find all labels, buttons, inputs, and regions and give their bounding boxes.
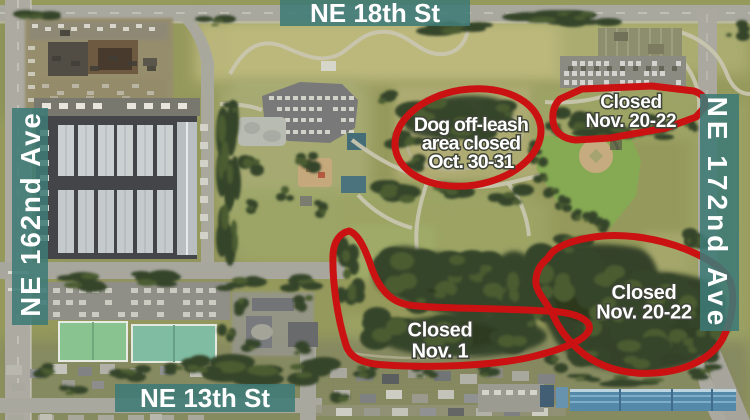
svg-text:Nov. 20-22: Nov. 20-22 bbox=[596, 302, 692, 324]
svg-text:NE 13th St: NE 13th St bbox=[140, 383, 270, 413]
svg-text:Oct. 30-31: Oct. 30-31 bbox=[428, 151, 514, 173]
svg-text:NE 172nd Ave: NE 172nd Ave bbox=[702, 97, 733, 330]
svg-text:Nov. 20-22: Nov. 20-22 bbox=[586, 111, 677, 132]
svg-text:NE 18th St: NE 18th St bbox=[310, 0, 440, 28]
svg-text:Nov. 1: Nov. 1 bbox=[412, 341, 469, 363]
svg-text:Closed: Closed bbox=[600, 92, 662, 113]
svg-text:Closed: Closed bbox=[408, 320, 473, 342]
svg-text:NE 162nd Ave: NE 162nd Ave bbox=[15, 111, 46, 316]
